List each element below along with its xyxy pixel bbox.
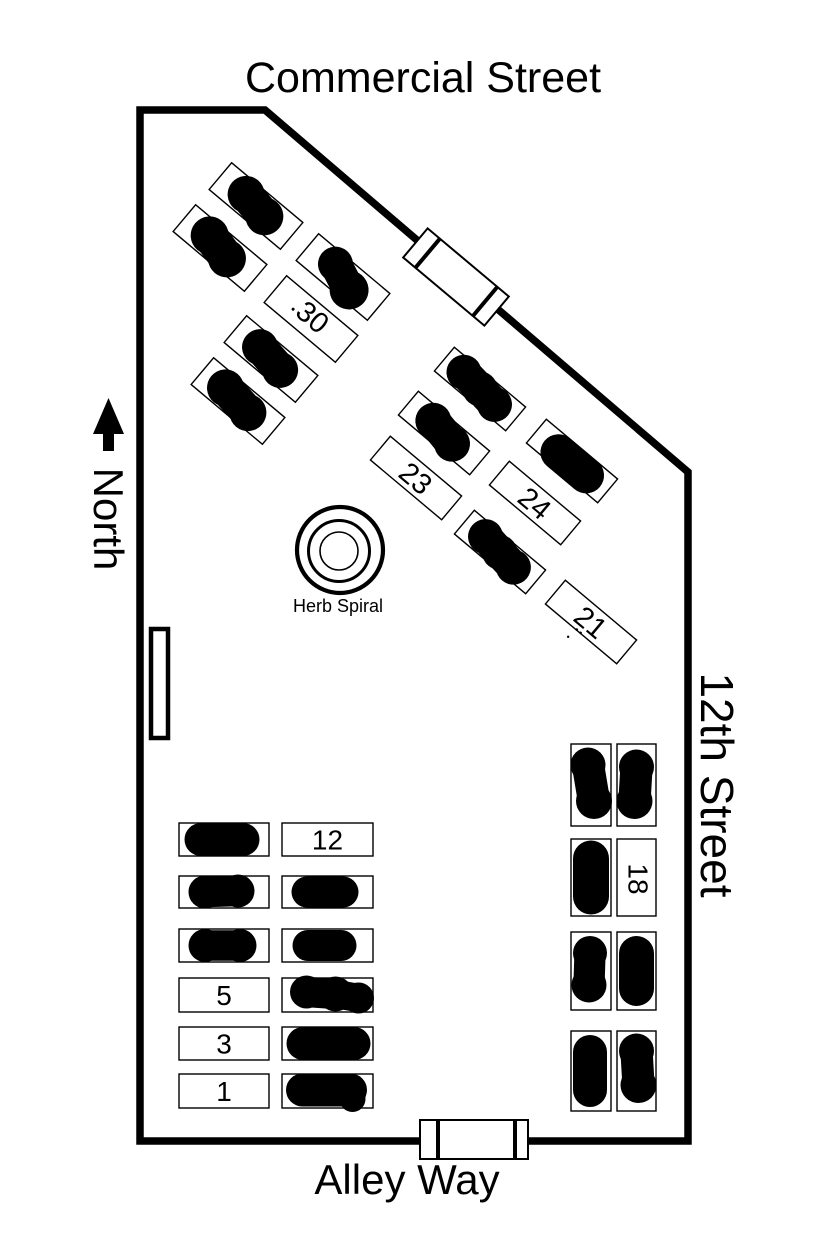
svg-text:North: North [85,468,132,571]
svg-text:Alley Way: Alley Way [314,1156,499,1203]
svg-text:1: 1 [216,1076,232,1107]
svg-text:5: 5 [216,980,232,1011]
svg-text:18: 18 [623,863,654,894]
svg-text:12th Street: 12th Street [691,672,743,897]
svg-text:Commercial Street: Commercial Street [245,54,601,102]
svg-text:Herb Spiral: Herb Spiral [293,596,383,616]
svg-text:12: 12 [312,825,343,856]
svg-text:3: 3 [216,1029,232,1060]
